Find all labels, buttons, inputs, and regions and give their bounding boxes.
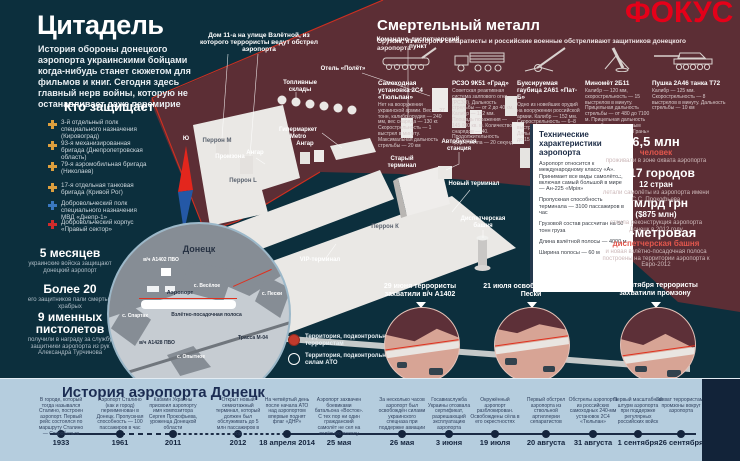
label-unit-a1428: в/ч А1428 ПВО [125,341,189,347]
label-vip-terminal: VIP-терминал [292,257,348,264]
medal-cross-icon [48,183,57,192]
runway-shape [384,340,460,359]
stat-desc: украинские войска защищают донецкий аэро… [16,261,124,274]
milestone-desc: Госавиаслужба Украины отозвала сертифика… [424,398,474,432]
label-hangar-b: Ангар [290,141,320,148]
defender-item: 93-я механизированная бригада (Днепропет… [48,140,148,161]
milestone-desc: На четвёртый день после начала АТО над а… [262,398,312,426]
label-dispatch-tower: Диспетчерская башня [456,216,510,229]
milestone: Аэропорт Сталино (как и город) переимено… [95,398,145,432]
weapons-heading: Смертельный металл [377,17,540,34]
weapon-name: Миномёт 2Б11 [585,80,651,87]
defender-label: 3-й отдельный полк специального назначен… [61,119,148,140]
terrain-spot [543,366,555,372]
label-perron-k: Перрон К [368,224,402,231]
defender-item: 3-й отдельный полк специального назначен… [48,119,148,140]
defenders-heading: Кто защищает [64,99,154,114]
stat-accent: человек [600,148,712,157]
event-title: 21 июля освобождено село Пески [479,283,583,299]
focus-logo: ФОКУС [625,0,733,30]
milestone: В городе, который тогда назывался Сталин… [36,398,86,437]
ato-territory-icon [288,353,300,365]
page-title: Цитадель [37,10,163,41]
milestone: Кабмин Украины присвоил аэропорту имя ко… [148,398,198,432]
label-airport: Аэропорт [155,291,205,297]
stat-population: 6,5 млн человек проживали в зоне охвата … [600,135,712,165]
weapon-name: Буксируемая гаубица 2А61 «Пат-Б» [517,80,583,101]
opytnoe-area [167,346,211,376]
weapon-illustration-mortar [585,46,649,72]
terrorist-territory-icon [288,334,300,346]
milestone: Окружённый аэропорт разблокирован. Освоб… [470,398,520,426]
event-title: 26 сентября террористы захватили промзон… [603,282,707,298]
medal-cross-icon [48,120,57,129]
defender-label: 79-я аэромобильная бригада (Николаев) [61,161,148,175]
event-map-sept26 [620,307,696,383]
medal-cross-icon [48,141,57,150]
legend-item-ato: Территория, подконтрольная силам АТО [288,353,398,366]
milestone: Обстрелы аэропорта из российских самоход… [568,398,618,426]
defender-label: 93-я механизированная бригада (Днепропет… [61,140,148,161]
weapon-illustration-tank [652,46,724,72]
milestone-desc: Первый обстрел аэропорта из ствольной ар… [521,398,571,426]
stat-tower: 45-метровая диспетчерская башня и новая … [600,226,712,269]
weapon-illustration-howitzer [517,46,581,72]
terrain-spot [667,370,681,377]
terrain-spot [397,362,407,368]
milestone-desc: Аэропорт захвачен боевиками батальона «В… [314,398,364,437]
callout-house-11a: Дом 11-а на улице Взлётной, из которого … [198,32,320,53]
police-cross-icon [48,201,57,210]
timeline-band: История аэропорта Донецк В городе, котор… [0,378,740,461]
weapon-desc: Нет на вооружении украинской армии. Вес … [378,103,446,149]
weapon-name: Самоходная установка 2С4 «Тюльпан» [378,80,446,101]
label-metro: Гипермаркет Metro [270,127,326,140]
runway-shape [141,300,236,309]
milestone: На четвёртый день после начала АТО над а… [262,398,312,426]
defender-item: 79-я аэромобильная бригада (Николаев) [48,161,148,175]
label-new-terminal: Новый терминал [446,181,502,188]
stat-accent: диспетчерская башня [600,239,712,248]
milestone: Открыт новый семиэтажный терминал, котор… [213,398,263,437]
label-peski: с. Пески [255,292,289,298]
label-hotel: Отель «Полёт» [318,66,368,73]
stat-desc: получили в награду за службу защитники а… [16,337,124,357]
military-unit-building [161,268,171,276]
label-unit-a1402: в/ч А1402 ПВО [129,258,193,264]
band-corner-block [702,379,740,461]
milestone-desc: Открыт новый семиэтажный терминал, котор… [213,398,263,437]
label-perron-l: Перрон L [226,178,260,185]
milestone: Аэропорт захвачен боевиками батальона «В… [314,398,364,437]
city-title: Донецк [109,244,289,254]
milestone-desc: Кабмин Украины присвоил аэропорту имя ко… [148,398,198,432]
milestone: Первый обстрел аэропорта из ствольной ар… [521,398,571,426]
milestone-date: 2011 [138,438,208,447]
volunteer-corps-icon [48,220,57,229]
stat-value: 6,5 млн [600,135,712,148]
medal-cross-icon [48,162,57,171]
milestone-desc: Аэропорт Сталино (как и город) переимено… [95,398,145,432]
defender-label: 17-я отдельная танковая бригада (Кривой … [61,182,148,196]
defender-item: 17-я отдельная танковая бригада (Кривой … [48,182,148,196]
stat-value: 5 месяцев [16,247,124,259]
label-old-terminal: Старый терминал [376,156,428,169]
compass-south-label: Ю [181,136,191,143]
infographic-root: Цитадель История обороны донецкого аэроп… [0,0,740,461]
terrain-spot [505,358,517,365]
stat-value: В 17 городов [600,167,712,180]
milestone-desc: В городе, который тогда назывался Сталин… [36,398,86,437]
milestone-desc: Захват террористами промзоны вокруг аэро… [656,398,706,415]
label-runway: Взлётно-посадочная полоса [159,313,254,319]
label-hangar-a: Ангар [240,150,270,157]
event-map-july21 [494,307,570,383]
weapon-tulpan: Самоходная установка 2С4 «Тюльпан» Нет н… [378,46,446,149]
weapon-name: Пушка 2А46 танка Т72 [652,80,726,87]
weapon-name: РСЗО 9К51 «Град» [452,80,514,87]
defender-item: Добровольческий полк специального назнач… [48,200,148,221]
milestone-desc: Обстрелы аэропорта из российских самоход… [568,398,618,426]
label-highway: Трасса М-04 [227,336,279,342]
label-fuel-depot: Топливные склады [276,80,324,93]
milestone: Госавиаслужба Украины отозвала сертифика… [424,398,474,432]
stat-value: 7 млрд грн [600,197,712,210]
front-line-inset [139,298,237,299]
stat-value: 45-метровая [600,226,712,239]
runway-shape [620,346,696,365]
terrain-spot [429,368,443,375]
milestone-date: 25 мая [304,438,374,447]
callout-command-post: Командно-диспетчерский пункт [372,36,464,50]
label-spartak: с. Спартак [115,314,155,320]
milestone: Захват террористами промзоны вокруг аэро… [656,398,706,415]
weapon-grad: РСЗО 9К51 «Град» Советская реактивная си… [452,46,514,147]
stat-accent: ($875 млн) [600,210,712,219]
milestone-desc: Окружённый аэропорт разблокирован. Освоб… [470,398,520,426]
weapon-tank-gun: Пушка 2А46 танка Т72 Калибр — 125 мм. Ск… [652,46,726,112]
label-bus-station: Автобусная станция [438,139,480,152]
event-title: 29 июня террористы захватили в/ч А1402 [368,283,472,299]
stat-months: 5 месяцев украинские войска защищают дон… [16,247,124,274]
captured-zone [621,308,695,382]
milestone: За несколько часов аэропорт был освобожд… [377,398,427,432]
label-opytnoe: с. Опытное [169,355,213,361]
label-perron-m: Перрон М [200,138,234,145]
weapon-desc: Калибр — 125 мм. Скорострельность — 8 вы… [652,89,726,112]
milestone-desc: За несколько часов аэропорт был освобожд… [377,398,427,432]
legend-item-terrorist: Территория, подконтрольная террористам [288,334,398,347]
stat-value: Более 20 [16,283,124,295]
runway-shape [494,336,570,355]
terrain-spot [635,366,647,372]
stat-desc: и новая взлётно-посадочная полоса постро… [600,249,712,269]
label-veseloe: с. Весёлое [183,284,231,290]
defender-label: Добровольческий полк специального назнач… [61,200,148,221]
stat-desc: проживали в зоне охвата аэропорта [600,158,712,165]
event-map-june29 [384,307,460,383]
stat-accent: 12 стран [600,180,712,189]
